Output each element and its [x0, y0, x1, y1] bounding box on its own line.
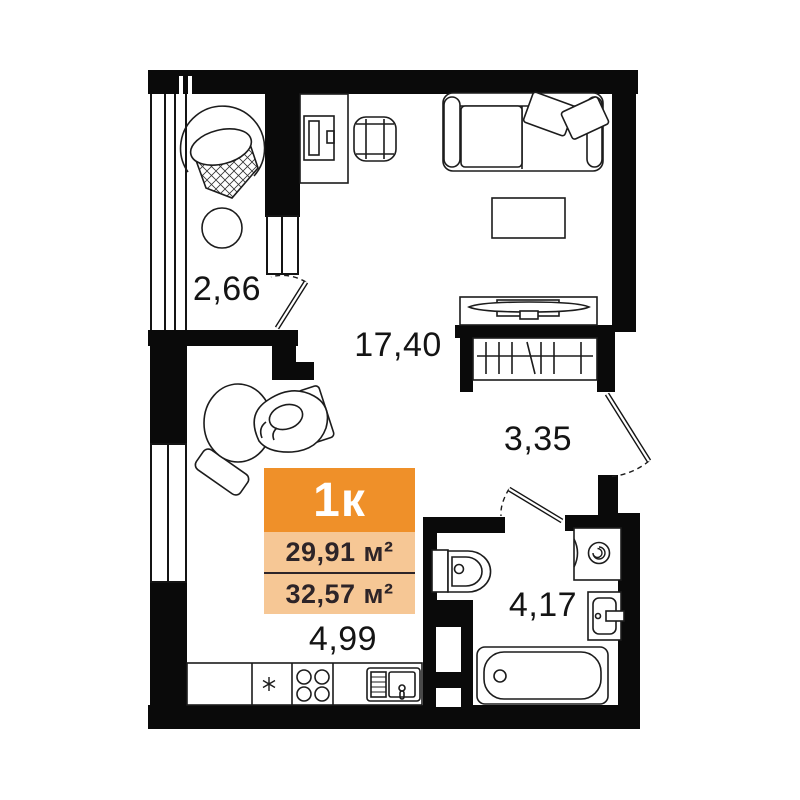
wardrobe-icon: [473, 338, 597, 380]
entrance-door-icon: [607, 394, 649, 477]
bathroom-door-icon: [501, 489, 562, 521]
unit-areas: 29,91 м² 32,57 м²: [264, 532, 415, 614]
room-label-living-room: 17,40: [338, 326, 458, 365]
toilet-icon: [432, 550, 491, 592]
tv-stand-icon: [460, 297, 597, 325]
unit-total-area: 32,57 м²: [264, 574, 415, 614]
bathtub-icon: [477, 647, 608, 704]
floor-plan: 2,66 17,40 3,35 4,17 4,99 1к 29,91 м² 32…: [0, 0, 800, 800]
balcony-table-icon: [202, 208, 242, 248]
kitchen-counter-icon: [187, 663, 422, 705]
desk-icon: [300, 94, 348, 183]
room-label-hallway: 3,35: [478, 420, 598, 459]
furniture-layer: [0, 0, 800, 800]
room-label-balcony: 2,66: [168, 270, 286, 309]
unit-badge: 1к 29,91 м² 32,57 м²: [264, 468, 415, 615]
washing-machine-icon: [574, 528, 621, 580]
unit-type-label: 1к: [264, 468, 415, 532]
office-chair-icon: [354, 117, 396, 161]
hanging-chair-icon: [181, 106, 265, 198]
unit-living-area: 29,91 м²: [264, 532, 415, 572]
room-label-kitchen: 4,99: [283, 620, 403, 659]
coffee-table-icon: [492, 198, 565, 238]
room-label-bathroom: 4,17: [483, 586, 603, 625]
kitchen-sink-icon: [367, 668, 420, 701]
sofa-icon: [443, 91, 609, 171]
